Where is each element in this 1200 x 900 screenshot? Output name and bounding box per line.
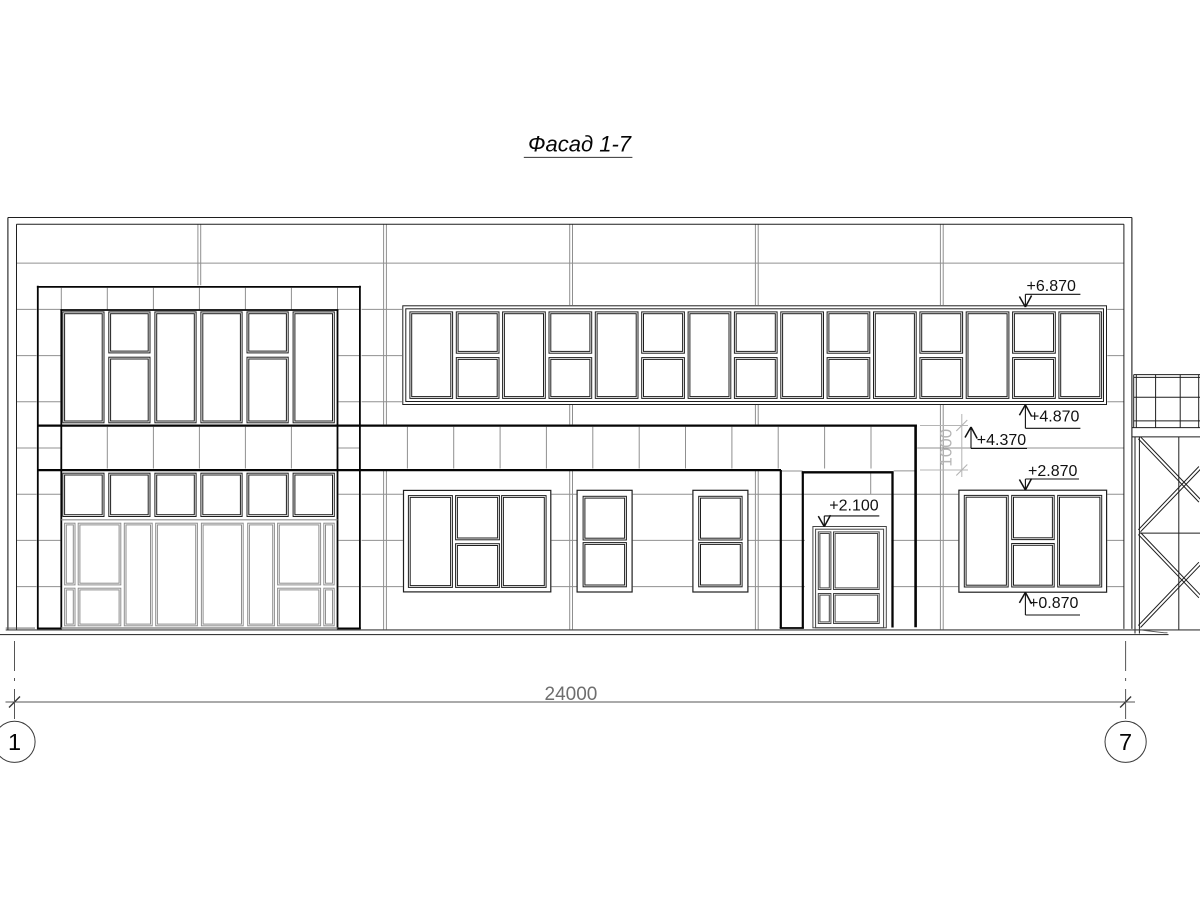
svg-text:1000: 1000 [937, 429, 956, 467]
svg-text:7: 7 [1119, 729, 1132, 755]
svg-text:+6.870: +6.870 [1027, 278, 1076, 295]
svg-text:+2.870: +2.870 [1028, 463, 1077, 480]
svg-text:1: 1 [8, 729, 21, 755]
svg-text:+4.370: +4.370 [977, 432, 1026, 449]
svg-text:Фасад 1-7: Фасад 1-7 [528, 132, 632, 157]
svg-text:24000: 24000 [545, 684, 598, 705]
svg-text:+2.100: +2.100 [829, 497, 878, 514]
svg-text:+0.870: +0.870 [1029, 595, 1078, 612]
svg-text:+4.870: +4.870 [1030, 409, 1079, 426]
